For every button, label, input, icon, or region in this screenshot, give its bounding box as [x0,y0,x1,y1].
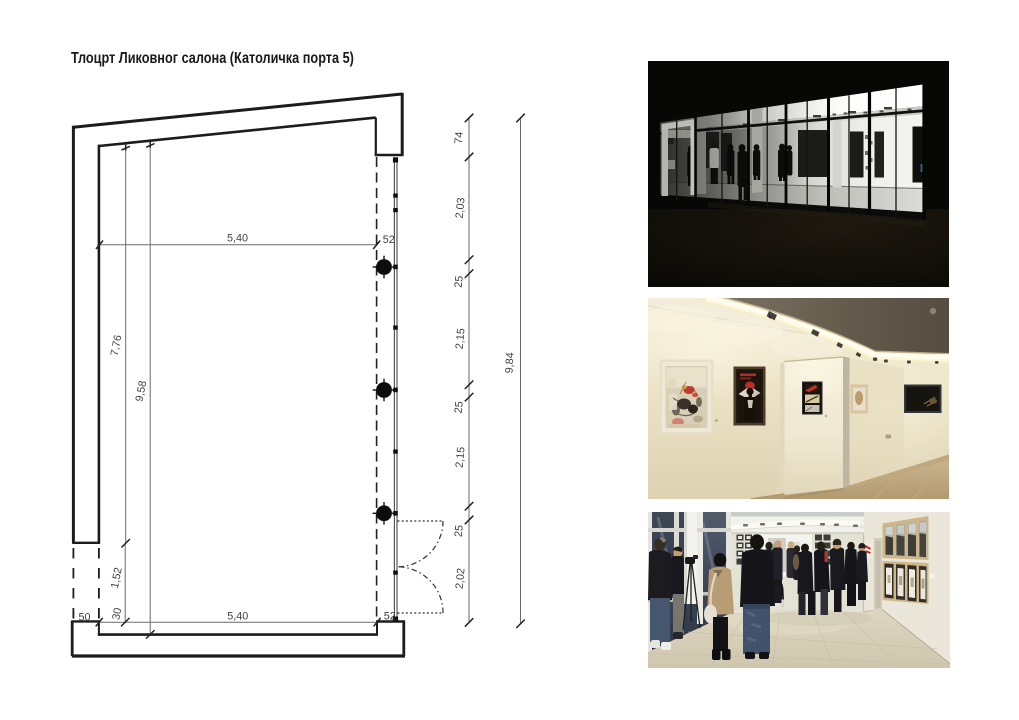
svg-text:52: 52 [384,611,396,623]
svg-text:52: 52 [383,234,395,246]
svg-text:2,02: 2,02 [454,568,468,590]
svg-text:30: 30 [110,607,124,621]
svg-text:9,58: 9,58 [134,380,150,403]
svg-text:2,03: 2,03 [454,197,468,219]
svg-text:9,84: 9,84 [503,352,516,374]
svg-text:25: 25 [453,525,466,538]
svg-text:2,15: 2,15 [454,328,468,350]
svg-text:5,40: 5,40 [227,233,248,245]
svg-text:25: 25 [453,401,466,414]
svg-text:2,15: 2,15 [454,446,468,468]
svg-text:74: 74 [453,131,466,144]
svg-text:5,40: 5,40 [227,611,248,623]
svg-text:25: 25 [453,275,466,288]
svg-text:1,52: 1,52 [109,566,125,589]
svg-text:7,76: 7,76 [109,334,125,357]
svg-text:50: 50 [78,612,90,624]
